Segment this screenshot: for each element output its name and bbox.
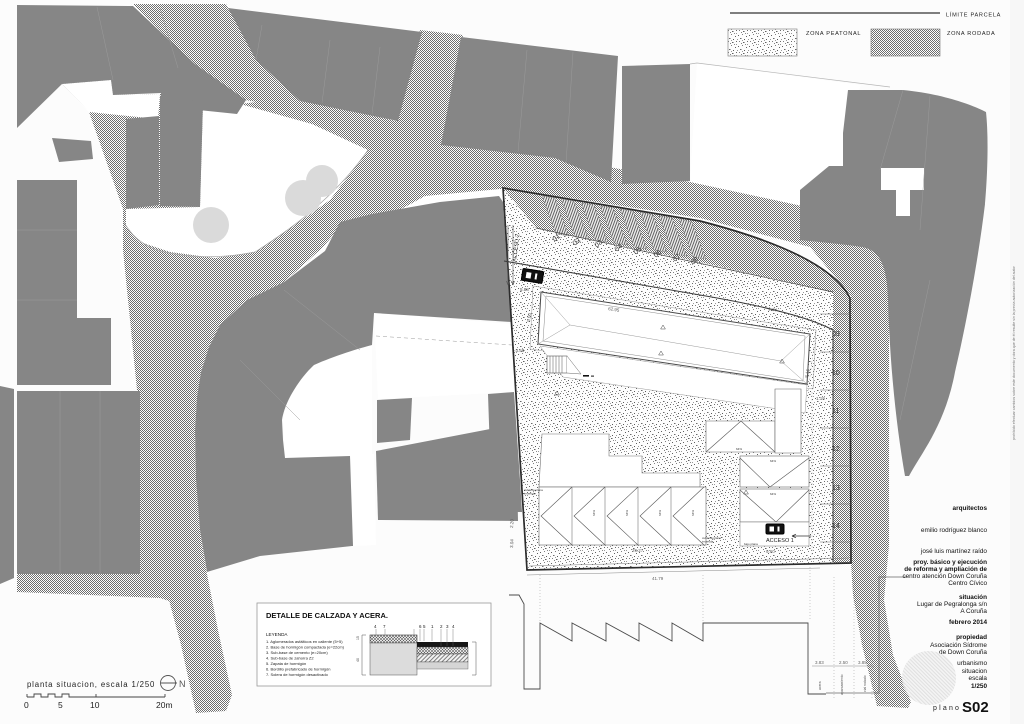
svg-text:2. Base de hormigón compactada: 2. Base de hormigón compactada (e=22cm) — [266, 645, 345, 650]
svg-text:2.20: 2.20 — [509, 519, 514, 529]
svg-text:Lugar de Pegralonga s/n: Lugar de Pegralonga s/n — [917, 601, 987, 608]
svg-text:proy. básico y ejecución: proy. básico y ejecución — [913, 559, 987, 566]
svg-text:4. Sub-base de zahorra Z2: 4. Sub-base de zahorra Z2 — [266, 656, 314, 661]
svg-text:5. Zapata de hormigón: 5. Zapata de hormigón — [266, 661, 306, 666]
svg-text:64%: 64% — [770, 492, 776, 496]
svg-text:invertida: invertida — [702, 540, 714, 544]
svg-text:9.60: 9.60 — [766, 549, 775, 554]
svg-text:1/250: 1/250 — [971, 683, 987, 690]
svg-text:ZONA RODADA: ZONA RODADA — [947, 31, 995, 37]
svg-text:A Coruña: A Coruña — [960, 608, 987, 615]
svg-text:5.88: 5.88 — [520, 287, 529, 292]
svg-text:15: 15 — [356, 636, 360, 640]
svg-text:de Down Coruña: de Down Coruña — [939, 649, 987, 656]
svg-text:urbanismo: urbanismo — [957, 660, 987, 667]
svg-text:3.83: 3.83 — [815, 660, 824, 665]
svg-text:41.79: 41.79 — [652, 576, 664, 581]
svg-text:14: 14 — [832, 523, 840, 530]
svg-text:plano: plano — [933, 705, 961, 712]
svg-text:ACCESO 1: ACCESO 1 — [766, 538, 794, 544]
svg-text:planta situacion, escala 1/250: planta situacion, escala 1/250 — [27, 680, 155, 689]
svg-text:-3.58: -3.58 — [514, 348, 525, 353]
svg-text:6. Bordillo prefabricado de ho: 6. Bordillo prefabricado de hormigón — [266, 667, 330, 672]
svg-text:arquitectos: arquitectos — [953, 505, 988, 512]
svg-text:bajo plana: bajo plana — [744, 542, 758, 546]
svg-text:DETALLE DE CALZADA Y ACERA.: DETALLE DE CALZADA Y ACERA. — [266, 611, 388, 620]
svg-text:LEYENDA: LEYENDA — [266, 632, 288, 637]
svg-text:64%: 64% — [770, 459, 776, 463]
svg-text:propiedad: propiedad — [956, 634, 987, 641]
svg-text:emilio rodríguez blanco: emilio rodríguez blanco — [921, 527, 988, 534]
svg-text:20m: 20m — [156, 700, 173, 710]
svg-text:centro atención Down Coruña: centro atención Down Coruña — [902, 573, 987, 580]
svg-text:11: 11 — [832, 408, 839, 415]
svg-text:invertida: invertida — [524, 492, 536, 496]
svg-text:Asociación Sídrome: Asociación Sídrome — [930, 642, 987, 649]
svg-text:12: 12 — [832, 446, 840, 453]
svg-text:1.19: 1.19 — [816, 396, 825, 401]
svg-text:64%: 64% — [592, 510, 596, 516]
svg-text:situacion: situacion — [962, 668, 988, 675]
svg-text:N: N — [179, 679, 186, 689]
svg-text:LÍMITE PARCELA: LÍMITE PARCELA — [946, 12, 1001, 19]
svg-text:09: 09 — [832, 331, 840, 338]
svg-text:vial rodado: vial rodado — [863, 675, 867, 692]
svg-text:3.04: 3.04 — [509, 539, 514, 549]
svg-text:0: 0 — [24, 700, 29, 710]
svg-text:2.50: 2.50 — [839, 660, 848, 665]
svg-text:64%: 64% — [658, 510, 662, 516]
svg-text:3. Sub-base de cemento (e=20cm: 3. Sub-base de cemento (e=20cm) — [266, 650, 328, 655]
svg-text:10: 10 — [832, 370, 840, 377]
svg-text:aparcamiento: aparcamiento — [840, 674, 844, 695]
svg-text:ZONA PEATONAL: ZONA PEATONAL — [806, 31, 861, 37]
svg-text:29.27: 29.27 — [632, 548, 644, 553]
svg-text:prohibido efectuar cambios sob: prohibido efectuar cambios sobre este do… — [1012, 265, 1016, 440]
svg-text:1. Aglomerados asfálticos en c: 1. Aglomerados asfálticos en caliente (5… — [266, 639, 343, 644]
svg-text:7. Solera de hormigón desactiv: 7. Solera de hormigón desactivado — [266, 672, 329, 677]
svg-text:10: 10 — [90, 700, 100, 710]
svg-text:64%: 64% — [691, 510, 695, 516]
svg-text:josé luis martínez raído: josé luis martínez raído — [920, 548, 988, 555]
svg-text:escala: escala — [969, 675, 988, 682]
svg-text:de reforma y ampliación de: de reforma y ampliación de — [904, 566, 987, 573]
svg-text:febrero 2014: febrero 2014 — [949, 619, 987, 626]
svg-text:S02: S02 — [962, 699, 989, 716]
svg-text:Centro Cívico: Centro Cívico — [948, 580, 987, 587]
svg-text:64%: 64% — [736, 447, 742, 451]
svg-text:situación: situación — [959, 594, 987, 601]
svg-text:40: 40 — [356, 658, 360, 662]
svg-text:5: 5 — [58, 700, 63, 710]
svg-text:acera: acera — [818, 681, 822, 690]
svg-text:3.85: 3.85 — [858, 660, 867, 665]
svg-text:64%: 64% — [625, 510, 629, 516]
svg-text:13: 13 — [832, 485, 840, 492]
